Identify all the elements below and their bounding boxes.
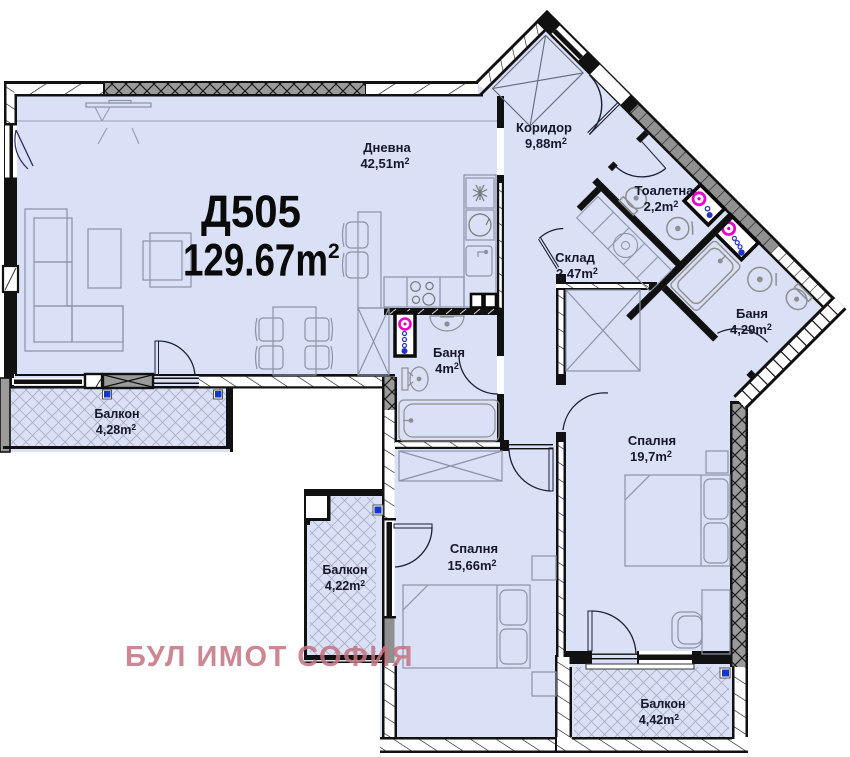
svg-text:19,7m2: 19,7m2 [630,449,672,464]
svg-text:4,28m2: 4,28m2 [96,422,136,437]
svg-text:42,51m2: 42,51m2 [360,156,409,171]
svg-text:БУЛ ИМОТ СОФИЯ: БУЛ ИМОТ СОФИЯ [125,641,414,673]
svg-text:Коридор: Коридор [516,120,572,135]
svg-text:Баня: Баня [736,306,768,321]
svg-text:Склад: Склад [555,250,596,265]
svg-text:Баня: Баня [433,345,465,360]
svg-text:2,2m2: 2,2m2 [644,199,679,214]
svg-text:4,42m2: 4,42m2 [639,712,679,727]
svg-text:Тоалетна: Тоалетна [635,183,695,198]
svg-text:Спалня: Спалня [628,433,676,448]
svg-text:2: 2 [328,240,340,263]
svg-text:Балкон: Балкон [322,563,367,577]
svg-text:4,29m2: 4,29m2 [730,322,772,337]
svg-text:Балкон: Балкон [640,697,685,711]
svg-text:15,66m2: 15,66m2 [447,558,496,573]
svg-text:4,22m2: 4,22m2 [325,578,365,593]
svg-text:Д505: Д505 [201,186,301,237]
svg-text:Дневна: Дневна [363,140,411,155]
svg-text:9,88m2: 9,88m2 [525,136,567,151]
svg-text:Балкон: Балкон [94,407,139,421]
svg-text:129.67m: 129.67m [183,235,328,286]
svg-text:Спалня: Спалня [450,541,498,556]
svg-text:2,47m2: 2,47m2 [556,266,598,281]
